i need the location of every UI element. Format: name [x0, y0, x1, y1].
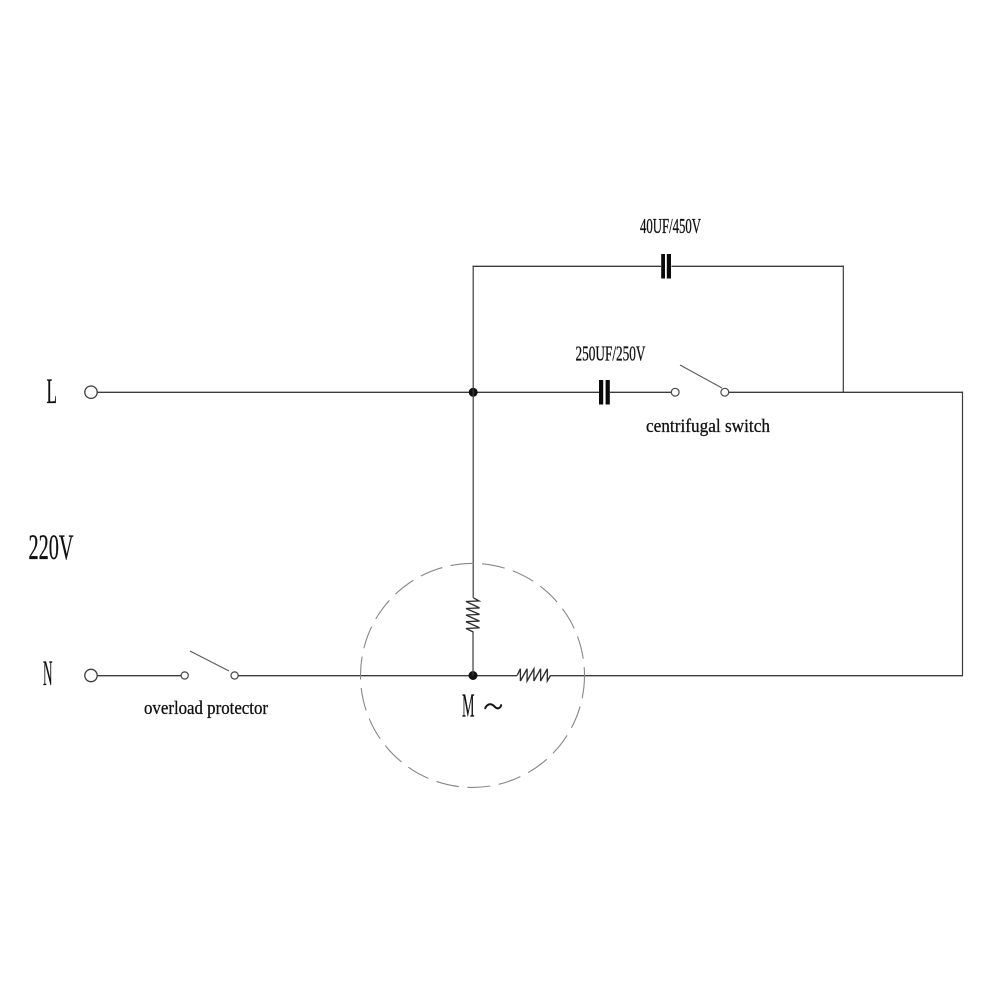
- svg-text:overload protector: overload protector: [144, 699, 268, 719]
- svg-text:250UF/250V: 250UF/250V: [576, 342, 646, 366]
- svg-text:centrifugal switch: centrifugal switch: [646, 417, 770, 437]
- svg-text:40UF/450V: 40UF/450V: [640, 214, 701, 238]
- svg-text:220V: 220V: [29, 527, 74, 567]
- svg-text:M: M: [462, 688, 475, 725]
- svg-text:N: N: [43, 653, 53, 693]
- svg-text:L: L: [47, 371, 58, 411]
